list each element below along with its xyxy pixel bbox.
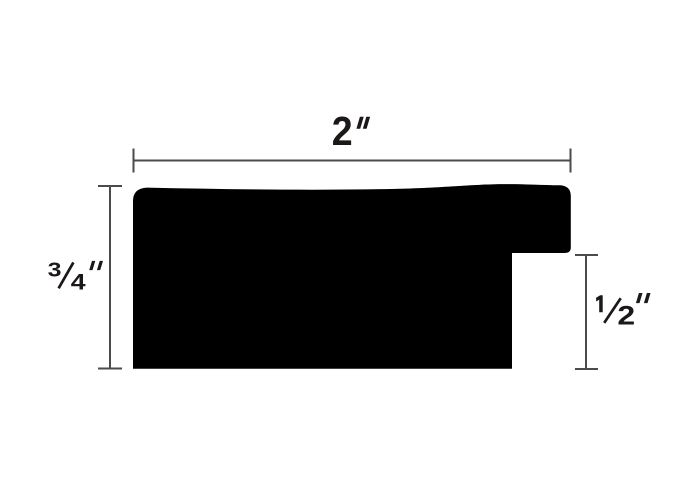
svg-text:4: 4 <box>71 270 86 294</box>
svg-text:3: 3 <box>48 258 62 281</box>
svg-text:2: 2 <box>332 110 353 155</box>
svg-text:2: 2 <box>617 301 635 331</box>
